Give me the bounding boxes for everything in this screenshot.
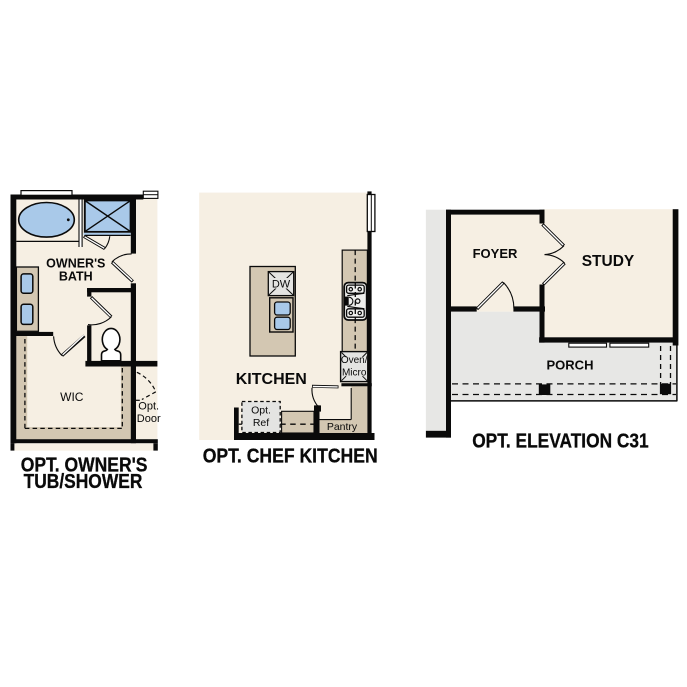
svg-text:STUDY: STUDY bbox=[582, 253, 635, 270]
svg-text:Opt.: Opt. bbox=[138, 401, 159, 413]
svg-text:FOYER: FOYER bbox=[473, 246, 518, 261]
svg-text:OPT. CHEF KITCHEN: OPT. CHEF KITCHEN bbox=[203, 445, 378, 467]
svg-text:OPT. ELEVATION C31: OPT. ELEVATION C31 bbox=[472, 431, 649, 453]
svg-text:Door: Door bbox=[137, 413, 161, 425]
svg-text:WIC: WIC bbox=[60, 390, 84, 404]
svg-text:KITCHEN: KITCHEN bbox=[236, 371, 307, 388]
svg-text:Oven/: Oven/ bbox=[341, 355, 368, 366]
svg-text:PORCH: PORCH bbox=[547, 357, 594, 372]
svg-text:DW: DW bbox=[272, 279, 291, 291]
svg-text:Micro: Micro bbox=[342, 367, 367, 378]
svg-text:Opt.: Opt. bbox=[251, 405, 271, 417]
svg-text:BATH: BATH bbox=[59, 269, 93, 283]
svg-text:TUB/SHOWER: TUB/SHOWER bbox=[24, 471, 143, 493]
svg-text:Pantry: Pantry bbox=[327, 421, 358, 433]
svg-text:Ref: Ref bbox=[253, 417, 269, 429]
svg-text:OWNER'S: OWNER'S bbox=[46, 256, 105, 270]
